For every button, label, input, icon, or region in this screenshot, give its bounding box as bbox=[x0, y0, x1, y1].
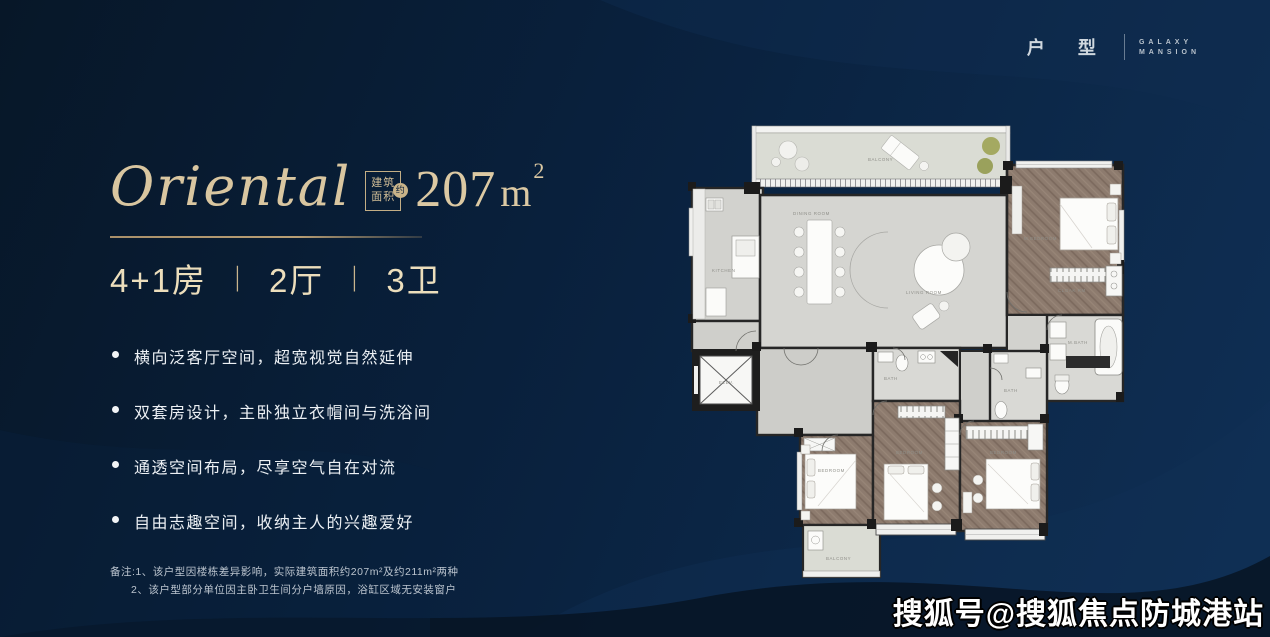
area-unit-sup: 2 bbox=[533, 158, 545, 183]
side-table-icon bbox=[939, 301, 949, 311]
area-value: 207m2 bbox=[415, 161, 545, 214]
feature-item: 双套房设计，主卧独立衣帽间与洗浴间 bbox=[110, 399, 580, 423]
label-elevator: ELEV. bbox=[719, 380, 734, 385]
label-dining: DINING ROOM bbox=[793, 211, 830, 216]
room-balcony-top: BALCONY bbox=[752, 126, 1010, 187]
area-number: 207 bbox=[415, 161, 496, 218]
label-bedroom-a: BEDROOM bbox=[818, 468, 845, 473]
footnote-line1: 备注:1、该户型因楼栋差异影响，实际建筑面积约207m²及约211m²两种 bbox=[110, 564, 580, 582]
feature-item: 自由志趣空间，收纳主人的兴趣爱好 bbox=[110, 509, 580, 533]
feature-list: 横向泛客厅空间，超宽视觉自然延伸 双套房设计，主卧独立衣帽间与洗浴间 通透空间布… bbox=[110, 344, 580, 533]
unit-title: Oriental bbox=[110, 160, 351, 214]
feature-item: 通透空间布局，尽享空气自在对流 bbox=[110, 454, 580, 478]
approx-badge: 约 bbox=[393, 183, 408, 198]
label-bedroom-c: BEDROOM bbox=[990, 450, 1017, 455]
spec-baths: 3卫 bbox=[386, 254, 441, 302]
brand-name-line2: MANSION bbox=[1139, 49, 1200, 56]
sohu-watermark: 搜狐号@搜狐焦点防城港站 bbox=[893, 589, 1264, 633]
label-bath-right: BATH bbox=[1004, 388, 1018, 393]
label-bath-mid: BATH bbox=[884, 376, 898, 381]
spec-rooms: 4+1房 bbox=[110, 254, 207, 302]
unit-spec: 4+1房 丨 2厅 丨 3卫 bbox=[110, 254, 580, 302]
brand-lockup: 户 型 GALAXY MANSION bbox=[1027, 34, 1200, 60]
marketing-slide: { "brand": { "category": "户 型", "name_li… bbox=[0, 0, 1270, 637]
room-hallway bbox=[757, 348, 873, 435]
area-badge-bottom: 面积 bbox=[371, 191, 395, 205]
label-living: LIVING ROOM bbox=[906, 290, 942, 295]
balcony-side-table-icon bbox=[920, 162, 929, 171]
label-cloak: CLOAK RM bbox=[1058, 288, 1086, 293]
brand-name-line1: GALAXY bbox=[1139, 39, 1200, 46]
label-master-bath: M.BATH bbox=[1068, 340, 1088, 345]
area-badge-top: 建筑 bbox=[371, 177, 395, 191]
feature-item: 横向泛客厅空间，超宽视觉自然延伸 bbox=[110, 344, 580, 368]
gold-divider bbox=[110, 236, 422, 238]
floorplan: BALCONY bbox=[688, 120, 1140, 594]
spec-separator: 丨 bbox=[347, 258, 364, 298]
label-master-bedroom: M.BEDROOM bbox=[1024, 236, 1057, 241]
area-unit: m bbox=[500, 170, 532, 215]
sw-balcony-fixtures bbox=[808, 531, 823, 550]
label-balcony: BALCONY bbox=[868, 157, 893, 162]
footnote-line2: 2、该户型部分单位因主卧卫生间分户墙原因，浴缸区域无安装窗户 bbox=[110, 582, 580, 600]
page-category-label: 户 型 bbox=[1027, 34, 1110, 60]
spec-separator: 丨 bbox=[230, 258, 247, 298]
footnotes: 备注:1、该户型因楼栋差异影响，实际建筑面积约207m²及约211m²两种 2、… bbox=[110, 564, 580, 600]
area-badge: 建筑 面积 约 bbox=[365, 171, 401, 211]
spec-halls: 2厅 bbox=[269, 254, 324, 302]
unit-info-panel: Oriental 建筑 面积 约 207m2 4+1房 丨 2厅 丨 3卫 横向… bbox=[110, 160, 580, 600]
label-bedroom-b: BEDROOM bbox=[896, 450, 923, 455]
label-balcony-sw: BALCONY bbox=[826, 556, 851, 561]
label-kitchen: KITCHEN bbox=[712, 268, 735, 273]
brand-divider bbox=[1124, 34, 1125, 60]
brand-name: GALAXY MANSION bbox=[1139, 39, 1200, 56]
headline: Oriental 建筑 面积 约 207m2 bbox=[110, 160, 580, 214]
